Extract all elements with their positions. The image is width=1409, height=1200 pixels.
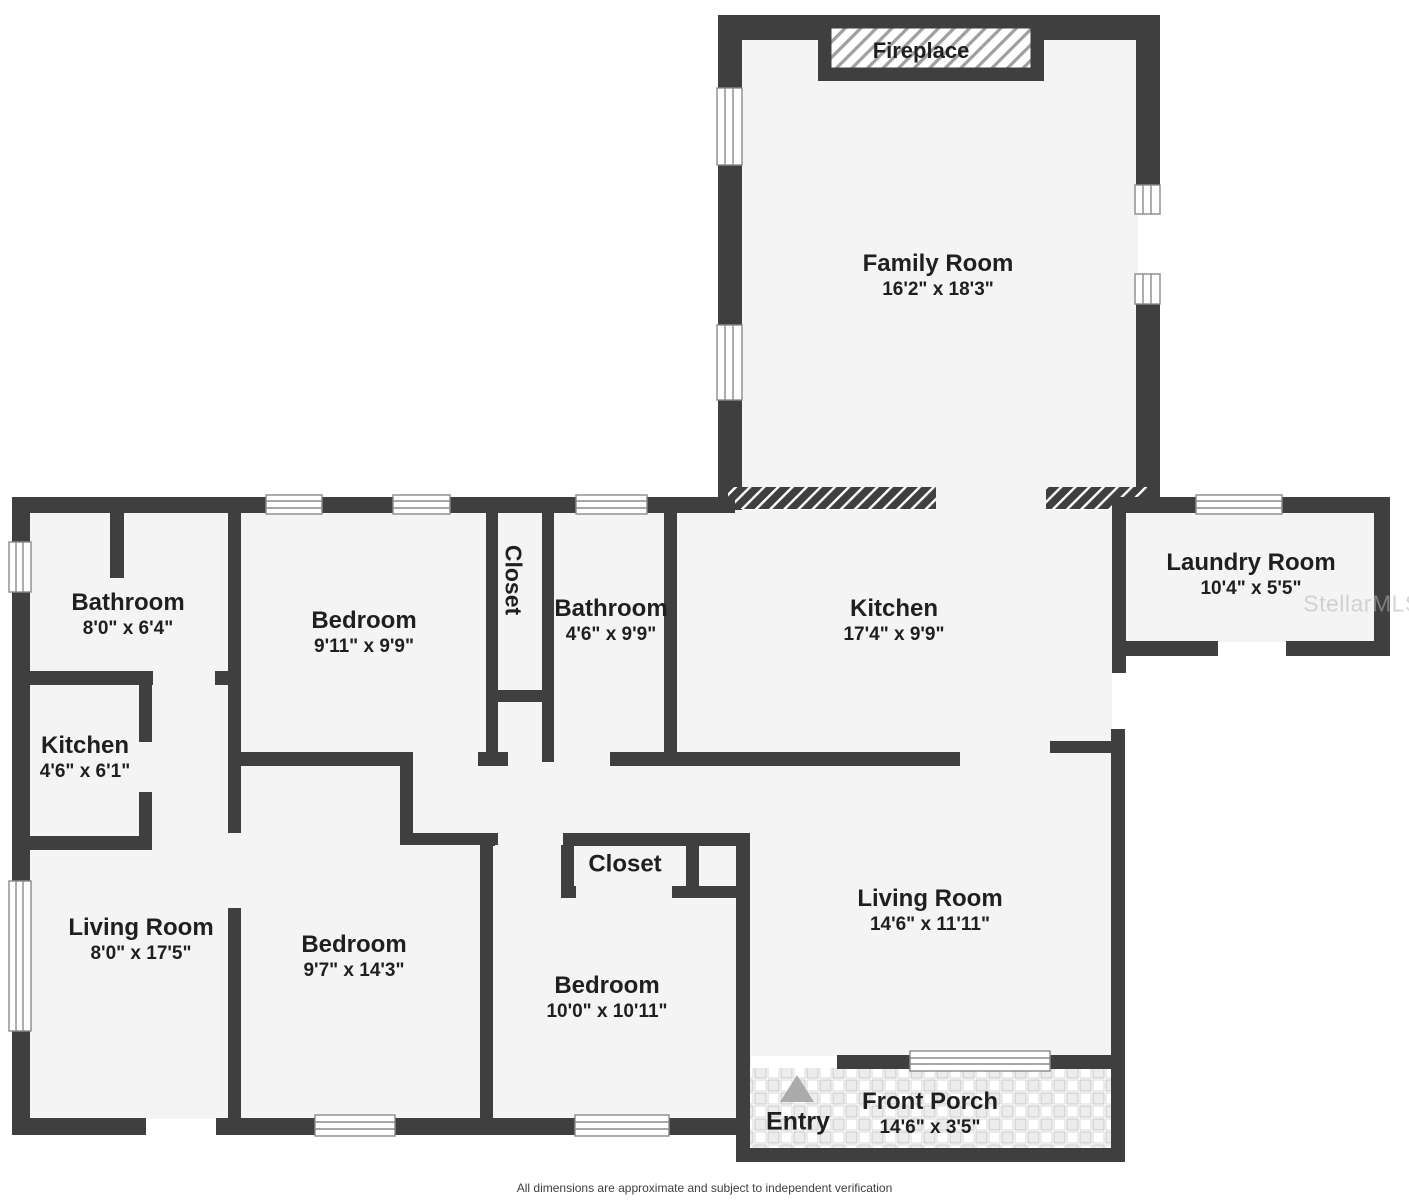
wall xyxy=(12,497,266,513)
floor-plan-page: Family Room 16'2" x 18'3" Laundry Room 1… xyxy=(0,0,1409,1200)
room-label-bathroom-hall: Bathroom 4'6" x 9'9" xyxy=(554,594,667,646)
wall xyxy=(228,497,241,833)
window xyxy=(1135,274,1160,304)
window xyxy=(717,88,742,165)
room-label-living-room-left: Living Room 8'0" x 17'5" xyxy=(68,913,213,965)
wall xyxy=(647,497,735,513)
window xyxy=(1135,185,1160,214)
window xyxy=(9,881,31,1031)
window xyxy=(717,325,742,400)
wall xyxy=(400,752,413,845)
room-dims: 4'6" x 9'9" xyxy=(554,623,667,646)
wall xyxy=(12,1118,146,1135)
door-opening xyxy=(751,1056,837,1068)
room-name: Bedroom xyxy=(546,971,667,1000)
wall xyxy=(12,836,152,850)
wall xyxy=(486,497,498,762)
room-label-living-room-right: Living Room 14'6" x 11'11" xyxy=(857,884,1002,936)
room-dims: 9'7" x 14'3" xyxy=(301,959,406,982)
wall xyxy=(610,752,960,766)
room-label-bedroom-lower-mid: Bedroom 10'0" x 10'11" xyxy=(546,971,667,1023)
room-name: Front Porch xyxy=(862,1087,998,1116)
wall xyxy=(1111,729,1125,1162)
room-name: Bathroom xyxy=(554,594,667,623)
wall xyxy=(322,497,393,513)
wall xyxy=(718,165,742,325)
wall xyxy=(228,908,241,1120)
room-dims: 16'2" x 18'3" xyxy=(863,278,1014,301)
wall xyxy=(478,752,508,766)
room-label-family-room: Family Room 16'2" x 18'3" xyxy=(863,249,1014,301)
room-name: Bedroom xyxy=(301,930,406,959)
window xyxy=(315,1115,395,1136)
door-opening xyxy=(1139,214,1156,274)
room-dims: 17'4" x 9'9" xyxy=(843,623,944,646)
wall xyxy=(837,1055,910,1069)
hatched-wall xyxy=(728,487,936,509)
wall xyxy=(395,1118,575,1135)
wall xyxy=(1112,641,1218,656)
window xyxy=(266,495,322,514)
room-dims: 9'11" x 9'9" xyxy=(311,635,416,658)
stellar-mls-watermark: StellarMLS xyxy=(1303,591,1409,618)
door-opening xyxy=(1218,642,1286,655)
wall xyxy=(1286,641,1390,656)
wall xyxy=(736,1148,1124,1162)
wall xyxy=(1136,15,1160,185)
room-label-closet-hall: Closet xyxy=(500,545,527,615)
room-dims: 8'0" x 17'5" xyxy=(68,942,213,965)
fireplace-label: Fireplace xyxy=(873,38,970,64)
room-dims: 14'6" x 11'11" xyxy=(857,913,1002,936)
wall xyxy=(718,15,742,90)
wall xyxy=(450,497,576,513)
room-name: Bedroom xyxy=(311,606,416,635)
window xyxy=(9,542,31,592)
window xyxy=(393,495,450,514)
wall xyxy=(672,886,747,898)
room-dims: 4'6" x 6'1" xyxy=(40,760,130,783)
room-name: Kitchen xyxy=(843,594,944,623)
room-dims: 14'6" x 3'5" xyxy=(862,1116,998,1139)
window xyxy=(575,1115,669,1136)
room-label-bedroom-lower-left: Bedroom 9'7" x 14'3" xyxy=(301,930,406,982)
room-label-front-porch: Front Porch 14'6" x 3'5" xyxy=(862,1087,998,1139)
wall xyxy=(1050,1055,1124,1069)
room-dims: 8'0" x 6'4" xyxy=(71,617,184,640)
entry-label: Entry xyxy=(766,1108,830,1137)
family-room-kitchen-opening xyxy=(936,487,1046,512)
wall xyxy=(1112,497,1126,673)
wall xyxy=(1136,304,1160,510)
wall xyxy=(216,1118,315,1135)
window xyxy=(910,1051,1050,1071)
room-label-kitchen-small: Kitchen 4'6" x 6'1" xyxy=(40,731,130,783)
wall xyxy=(542,497,554,762)
wall xyxy=(139,685,152,742)
wall xyxy=(480,833,495,846)
room-name: Bathroom xyxy=(71,588,184,617)
room-label-bathroom-left: Bathroom 8'0" x 6'4" xyxy=(71,588,184,640)
wall xyxy=(1374,497,1390,656)
window xyxy=(576,495,647,514)
wall xyxy=(561,845,574,888)
room-label-bedroom-middle: Bedroom 9'11" x 9'9" xyxy=(311,606,416,658)
wall xyxy=(12,497,30,542)
room-label-kitchen-main: Kitchen 17'4" x 9'9" xyxy=(843,594,944,646)
room-name: Living Room xyxy=(68,913,213,942)
wall xyxy=(563,833,745,846)
wall xyxy=(1050,741,1112,753)
room-name: Family Room xyxy=(863,249,1014,278)
room-name: Kitchen xyxy=(40,731,130,760)
wall xyxy=(686,845,699,888)
wall xyxy=(486,690,554,702)
wall xyxy=(561,886,576,898)
footer-disclaimer: All dimensions are approximate and subje… xyxy=(0,1181,1409,1195)
wall xyxy=(736,833,750,1162)
window xyxy=(1196,495,1282,514)
door-opening xyxy=(146,1119,216,1134)
room-name: Living Room xyxy=(857,884,1002,913)
room-dims: 10'0" x 10'11" xyxy=(546,1000,667,1023)
wall xyxy=(233,752,413,766)
wall xyxy=(30,671,153,685)
room-name: Laundry Room xyxy=(1166,548,1335,577)
wall xyxy=(480,845,493,1120)
room-label-closet-lower: Closet xyxy=(588,849,661,878)
room-name: Closet xyxy=(588,849,661,878)
wall xyxy=(110,513,124,578)
